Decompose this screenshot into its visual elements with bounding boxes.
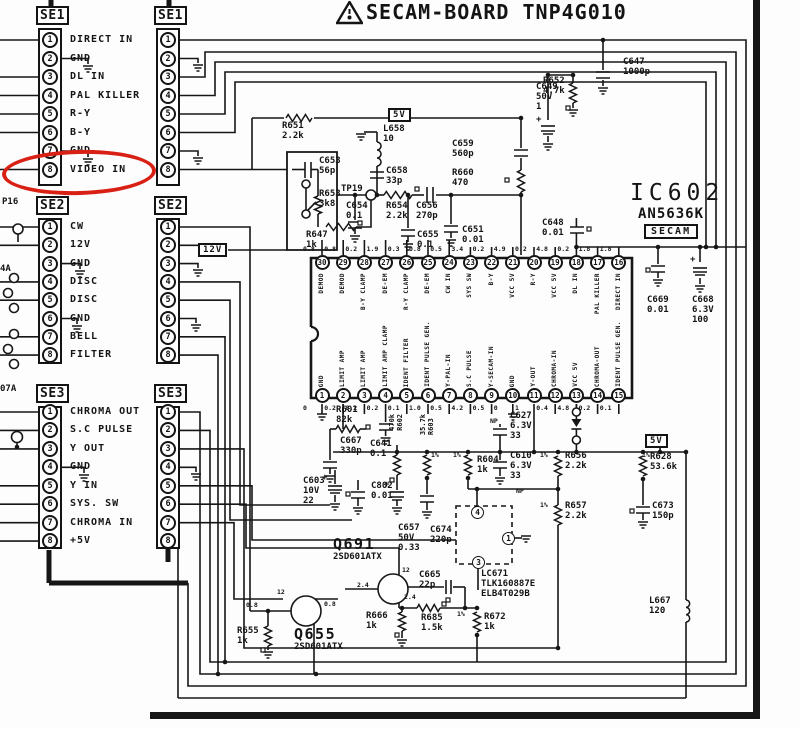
component-label-r604: R6041k <box>477 456 499 476</box>
ic-pin-label-15: IDENT PULSE GEN. <box>615 321 622 387</box>
ic-pin-voltage-22: 0.2 <box>473 245 485 253</box>
component-label-r628: R62853.6k <box>650 453 677 473</box>
ic-pin-label-5: IDENT FILTER <box>403 338 410 387</box>
ic-pin-voltage-18: 0.2 <box>557 245 569 253</box>
pin-label-se1-1: DIRECT IN <box>70 34 133 45</box>
ic-pin-label-29: DEMOD <box>339 273 346 294</box>
component-label-r651: R6512.2k <box>282 122 304 142</box>
ic-pin-label-3: LIMIT AMP <box>360 350 367 387</box>
ic-pin-label-10: GND <box>509 375 516 387</box>
ic-pin-22: 22 <box>484 255 499 270</box>
ic-pin-27: 27 <box>378 255 393 270</box>
ic-pin-label-8: S.C PULSE <box>466 350 473 387</box>
ic-pin-label-11: Y-OUT <box>530 366 537 387</box>
inner-se3-pin-1: 1 <box>160 404 176 420</box>
ic-pin-23: 23 <box>463 255 478 270</box>
ic-pin-voltage-13: 4.8 <box>557 404 569 412</box>
lc671-pin-1: 1 <box>502 532 515 545</box>
ic-pin-19: 19 <box>548 255 563 270</box>
ic-pin-voltage-12: 0.4 <box>536 404 548 412</box>
pin-label-se2-6: GND <box>70 313 91 324</box>
ic-pin-label-21: VCC 5V <box>509 273 516 298</box>
inner-se2-pin-1: 1 <box>160 219 176 235</box>
inner-se1-pin-6: 6 <box>160 125 176 141</box>
warning-triangle-icon <box>336 1 363 29</box>
ic-pin-29: 29 <box>336 255 351 270</box>
pin-label-se3-4: GND <box>70 461 91 472</box>
pin-label-se1-6: B-Y <box>70 127 91 138</box>
connector-header-se1: SE1 <box>36 6 69 25</box>
ic-pin-voltage-2: 0.2 <box>324 404 336 412</box>
ic-pin-voltage-16: 1.8 <box>600 245 612 253</box>
ic-pin-label-7: Y-PAL-IN <box>445 354 452 387</box>
connector-header-se2: SE2 <box>36 196 69 215</box>
rail-label-5v-top: 5V <box>388 108 411 122</box>
pin-label-se1-2: GND <box>70 53 91 64</box>
np-mark-1: NP <box>516 487 524 495</box>
q655-emitter-voltage: 0.8 <box>324 600 336 608</box>
q655-collector-voltage: 12 <box>277 588 285 596</box>
component-label-l658: L65810 <box>383 125 405 145</box>
ic-pin-label-27: DE-EM <box>382 273 389 294</box>
ic-pin-voltage-8: 4.2 <box>451 404 463 412</box>
svg-text:+: + <box>690 255 696 265</box>
ic-pin-11: 11 <box>527 388 542 403</box>
inner-se1-pin-5: 5 <box>160 106 176 122</box>
ic-pin-voltage-9: 0.5 <box>473 404 485 412</box>
component-label-c668: C6686.3V100 <box>692 296 714 326</box>
component-label-c647: C6471000p <box>623 58 650 78</box>
edge-fragment-07a: 07A <box>0 384 16 394</box>
connector-se1-pin-3: 3 <box>42 69 58 85</box>
inner-se3-pin-7: 7 <box>160 515 176 531</box>
component-label-c802: C8020.01 <box>371 482 393 502</box>
ic-part-number: AN5636K <box>638 206 704 222</box>
ic-pin-label-24: CW IN <box>445 273 452 294</box>
ic-pin-label-19: VCC 5V <box>551 273 558 298</box>
q691-collector-voltage: 12 <box>402 566 410 574</box>
component-label-c610: C6106.3V33 <box>510 452 532 482</box>
ic-pin-12: 12 <box>548 388 563 403</box>
inner-se3-pin-3: 3 <box>160 441 176 457</box>
ic-pin-1: 1 <box>315 388 330 403</box>
pin-label-se2-3: GND <box>70 258 91 269</box>
ic-pin-8: 8 <box>463 388 478 403</box>
ic-pin-voltage-7: 0.5 <box>430 404 442 412</box>
ic-pin-label-6: IDENT PULSE GEN. <box>424 321 431 387</box>
connector-se2-pin-1: 1 <box>42 219 58 235</box>
inner-se2-pin-8: 8 <box>160 347 176 363</box>
connector-se3-pin-3: 3 <box>42 441 58 457</box>
lc671-pin-3: 3 <box>472 556 485 569</box>
ic-pin-voltage-26: 0.3 <box>388 245 400 253</box>
ic-pin-label-4: LIMIT AMP CLAMP <box>382 325 389 387</box>
ic-pin-7: 7 <box>442 388 457 403</box>
component-label-c648: C6480.01 <box>542 219 564 239</box>
connector-se2-pin-8: 8 <box>42 347 58 363</box>
ic-pin-voltage-23: 3.4 <box>451 245 463 253</box>
inner-connector-header-se2: SE2 <box>154 196 187 215</box>
ic-pin-label-20: R-Y <box>530 273 537 285</box>
q691-base-voltage: 2.4 <box>357 581 369 589</box>
component-label-c651: C6510.01 <box>462 226 484 246</box>
pin-label-se2-5: DISC <box>70 294 98 305</box>
component-label-c659: C659560p <box>452 140 474 160</box>
ic-pin-25: 25 <box>421 255 436 270</box>
ic-pin-voltage-4: 0.2 <box>367 404 379 412</box>
component-label-q655: Q6552SD601ATX <box>294 626 343 652</box>
pin-label-se2-7: BELL <box>70 331 98 342</box>
pin-label-se2-4: DISC <box>70 276 98 287</box>
component-label-r666: R6661k <box>366 612 388 632</box>
component-label-c627: C6276.3V33 <box>510 412 532 442</box>
ic-pin-voltage-27: 1.9 <box>367 245 379 253</box>
tolerance-mark-5: 1% <box>457 610 465 618</box>
component-label-c656: C656270p <box>416 202 438 222</box>
ic-pin-label-16: DIRECT IN <box>615 273 622 310</box>
tolerance-mark-4: 1% <box>642 451 650 459</box>
component-label-r653: R6533k8 <box>319 190 341 210</box>
inner-se1-pin-4: 4 <box>160 88 176 104</box>
component-label-c669: C6690.01 <box>647 296 669 316</box>
secam-board-schematic: ++++ SECAM-BOARD TNP4G010 IC602 AN5636K … <box>0 0 800 729</box>
ic-pin-14: 14 <box>590 388 605 403</box>
ic-pin-voltage-6: 1.0 <box>409 404 421 412</box>
ic-pin-4: 4 <box>378 388 393 403</box>
component-label-r647: R6471k <box>306 231 328 251</box>
ic-pin-voltage-14: 0.2 <box>579 404 591 412</box>
ic-pin-28: 28 <box>357 255 372 270</box>
component-label-q691: Q6912SD601ATX <box>333 536 382 562</box>
inner-se1-pin-3: 3 <box>160 69 176 85</box>
ic-pin-label-14: CHROMA-OUT <box>594 346 601 387</box>
tolerance-mark-2: 1% <box>540 451 548 459</box>
ic-pin-label-28: B-Y CLAMP <box>360 273 367 310</box>
ic-pin-24: 24 <box>442 255 457 270</box>
component-label-c654: C6540.1 <box>346 202 368 222</box>
pin-label-se2-1: CW <box>70 221 84 232</box>
edge-fragment-p16: P16 <box>2 197 18 207</box>
pin-label-se3-3: Y OUT <box>70 443 105 454</box>
edge-fragment-4a: 4A <box>0 264 11 274</box>
ic-pin-label-9: Y-SECAM-IN <box>488 346 495 387</box>
component-label-c674: C674220p <box>430 526 452 546</box>
np-mark-0: NP <box>490 417 498 425</box>
inner-connector-header-se3: SE3 <box>154 384 187 403</box>
inner-connector-header-se1: SE1 <box>154 6 187 25</box>
tolerance-mark-3: 1% <box>540 501 548 509</box>
connector-se2-pin-3: 3 <box>42 256 58 272</box>
ic-pin-voltage-10: 0 <box>494 404 498 412</box>
component-label-r601: R60182k <box>336 406 358 426</box>
inner-se2-pin-6: 6 <box>160 311 176 327</box>
component-label-l667: L667120 <box>649 597 671 617</box>
connector-se1-pin-4: 4 <box>42 88 58 104</box>
ic-pin-voltage-17: 1.8 <box>579 245 591 253</box>
component-label-tp19: TP19 <box>341 185 363 195</box>
ic-pin-label-12: CHROMA-IN <box>551 350 558 387</box>
component-label-r660: R660470 <box>452 169 474 189</box>
ic-pin-voltage-1: 0 <box>303 404 307 412</box>
tolerance-mark-1: 1% <box>453 451 461 459</box>
connector-se1-pin-5: 5 <box>42 106 58 122</box>
ic-pin-label-18: DL IN <box>572 273 579 294</box>
ic-pin-label-1: GND <box>318 375 325 387</box>
ic-pin-9: 9 <box>484 388 499 403</box>
connector-se3-pin-7: 7 <box>42 515 58 531</box>
inner-se2-pin-4: 4 <box>160 274 176 290</box>
pin-label-se1-3: DL IN <box>70 71 105 82</box>
component-label-c649: C64950V1 <box>536 83 558 113</box>
ic-pin-label-13: VCC 5V <box>572 362 579 387</box>
component-label-c653: C65356p <box>319 157 341 177</box>
ic-pin-6: 6 <box>421 388 436 403</box>
component-label-c665: C66522p <box>419 571 441 591</box>
component-label-c658: C65833p <box>386 167 408 187</box>
q691-emitter-voltage: 2.4 <box>404 593 416 601</box>
connector-se2-pin-6: 6 <box>42 311 58 327</box>
pin-label-se1-4: PAL KILLER <box>70 90 140 101</box>
ic-pin-label-26: R-Y CLAMP <box>403 273 410 310</box>
connector-se1-pin-1: 1 <box>42 32 58 48</box>
inner-se1-pin-1: 1 <box>160 32 176 48</box>
connector-se3-pin-1: 1 <box>42 404 58 420</box>
ic-pin-label-17: PAL KILLER <box>594 273 601 314</box>
ic-pin-label-22: B-Y <box>488 273 495 285</box>
component-label-r655: R6551k <box>237 627 259 647</box>
pin-label-se3-7: CHROMA IN <box>70 517 133 528</box>
connector-se1-pin-2: 2 <box>42 51 58 67</box>
ic-pin-label-2: LIMIT AMP <box>339 350 346 387</box>
board-title: SECAM-BOARD TNP4G010 <box>366 0 627 24</box>
connector-se2-pin-4: 4 <box>42 274 58 290</box>
component-label-r656: R6562.2k <box>565 452 587 472</box>
tolerance-mark-0: 1% <box>431 451 439 459</box>
connector-se1-pin-6: 6 <box>42 125 58 141</box>
ic-pin-voltage-28: 0.2 <box>345 245 357 253</box>
inner-se1-pin-8: 8 <box>160 162 176 178</box>
ic-pin-voltage-5: 0.1 <box>388 404 400 412</box>
rail-label-12v: 12V <box>198 243 227 257</box>
inner-se1-pin-2: 2 <box>160 51 176 67</box>
svg-text:+: + <box>536 115 542 125</box>
component-label-r602: 470kR602 <box>388 414 404 431</box>
ic-pin-voltage-15: 0.1 <box>600 404 612 412</box>
ic-pin-2: 2 <box>336 388 351 403</box>
connector-se2-pin-7: 7 <box>42 329 58 345</box>
component-label-r672: R6721k <box>484 613 506 633</box>
ic-pin-3: 3 <box>357 388 372 403</box>
component-label-lc671: LC671TLK160887EELB4T029B <box>481 570 535 600</box>
component-label-c655: C6550.1 <box>417 231 439 251</box>
ic-reference: IC602 <box>630 180 724 206</box>
ic-pin-20: 20 <box>527 255 542 270</box>
pin-label-se3-1: CHROMA OUT <box>70 406 140 417</box>
ic-pin-18: 18 <box>569 255 584 270</box>
pin-label-se3-8: +5V <box>70 535 91 546</box>
connector-header-se3: SE3 <box>36 384 69 403</box>
ic-pin-label-30: DEMOD <box>318 273 325 294</box>
pin-label-se3-6: SYS. SW <box>70 498 119 509</box>
ic-pin-voltage-20: 0.2 <box>515 245 527 253</box>
ic-standard-badge: SECAM <box>644 224 698 239</box>
pin-label-se3-2: S.C PULSE <box>70 424 133 435</box>
ic-pin-label-25: DE-EM <box>424 273 431 294</box>
component-label-r657: R6572.2k <box>565 502 587 522</box>
component-label-r603: 35.7kR603 <box>419 414 435 435</box>
ic-pin-label-23: SYS SW <box>466 273 473 298</box>
component-label-c657: C65750V0.33 <box>398 524 420 554</box>
inner-se1-pin-7: 7 <box>160 143 176 159</box>
ic-pin-17: 17 <box>590 255 605 270</box>
component-label-c673: C673150p <box>652 502 674 522</box>
inner-se3-pin-5: 5 <box>160 478 176 494</box>
pin-label-se1-5: R-Y <box>70 108 91 119</box>
rail-label-5v-right: 5V <box>645 434 668 448</box>
pin-label-se3-5: Y IN <box>70 480 98 491</box>
component-label-r654: R6542.2k <box>386 202 408 222</box>
pin-label-se2-2: 12V <box>70 239 91 250</box>
inner-se2-pin-3: 3 <box>160 256 176 272</box>
ic-pin-voltage-21: 4.9 <box>494 245 506 253</box>
component-label-r685: R6851.5k <box>421 614 443 634</box>
connector-se3-pin-5: 5 <box>42 478 58 494</box>
ic-pin-13: 13 <box>569 388 584 403</box>
component-label-c603: C60310V22 <box>303 477 325 507</box>
component-label-c667: C667330p <box>340 437 362 457</box>
ic-pin-30: 30 <box>315 255 330 270</box>
inner-se2-pin-7: 7 <box>160 329 176 345</box>
pin-label-se2-8: FILTER <box>70 349 112 360</box>
q655-base-voltage: 0.8 <box>246 601 258 609</box>
component-label-c641: C6410.1 <box>370 440 392 460</box>
ic-pin-voltage-19: 4.8 <box>536 245 548 253</box>
lc671-pin-4: 4 <box>471 506 484 519</box>
